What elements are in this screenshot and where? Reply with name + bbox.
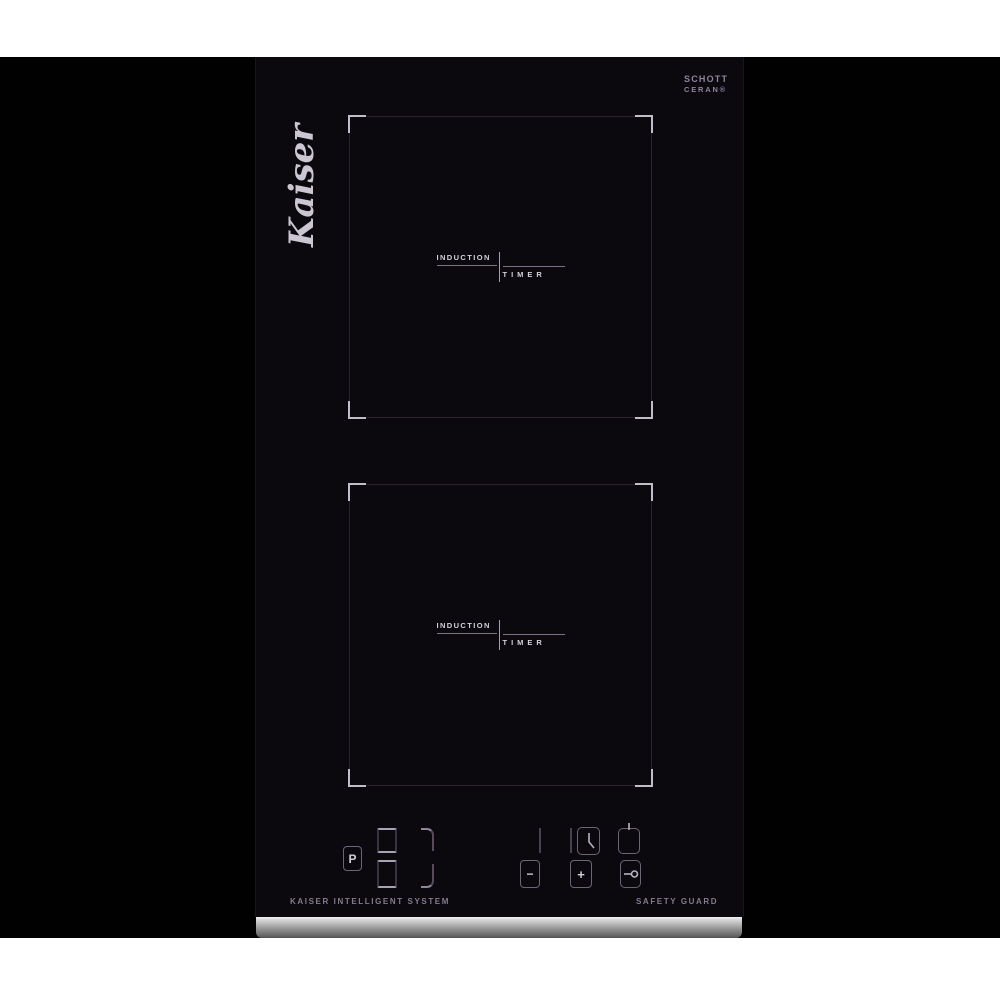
steel-trim <box>256 917 742 938</box>
ceran-text: CERAN® <box>684 85 744 94</box>
power-level-display-top <box>377 828 397 853</box>
induction-label: INDUCTION <box>437 253 497 266</box>
label-divider <box>499 252 500 282</box>
cooking-zone-top: INDUCTION TIMER <box>349 116 652 418</box>
timer-label: TIMER <box>503 634 565 648</box>
safety-guard-text: SAFETY GUARD <box>636 897 718 906</box>
induction-label: INDUCTION <box>437 621 497 634</box>
schott-ceran-logo: SCHOTT CERAN® <box>684 74 744 94</box>
panel-divider <box>539 828 541 853</box>
zone-corner-mark <box>635 483 653 501</box>
child-lock-button[interactable] <box>620 860 641 888</box>
timer-button[interactable] <box>577 827 600 855</box>
plus-button[interactable]: + <box>570 860 592 888</box>
key-icon <box>622 862 640 886</box>
panel-divider <box>570 828 572 853</box>
zone-corner-mark <box>635 769 653 787</box>
kaiser-brand-logo: Kaiser <box>263 95 335 255</box>
clock-icon <box>579 829 599 853</box>
kaiser-logo-text: Kaiser <box>282 122 322 248</box>
timer-label: TIMER <box>503 266 565 280</box>
zone-corner-mark <box>635 401 653 419</box>
booster-button[interactable]: P <box>343 846 362 871</box>
zone-corner-mark <box>348 401 366 419</box>
label-divider <box>499 620 500 650</box>
power-level-display-bottom <box>377 860 397 888</box>
zone-corner-mark <box>348 769 366 787</box>
plus-label: + <box>577 867 585 882</box>
power-button[interactable] <box>618 828 640 854</box>
power-icon <box>628 823 630 830</box>
intelligent-system-text: KAISER INTELLIGENT SYSTEM <box>290 897 450 906</box>
zone-corner-mark <box>635 115 653 133</box>
booster-label: P <box>348 852 356 866</box>
cooking-zone-bottom: INDUCTION TIMER <box>349 484 652 786</box>
zone-corner-mark <box>348 483 366 501</box>
zone-select-bracket-top <box>421 828 434 851</box>
zone-label: INDUCTION TIMER <box>437 252 565 282</box>
zone-corner-mark <box>348 115 366 133</box>
schott-text: SCHOTT <box>684 74 744 84</box>
minus-button[interactable]: − <box>520 860 540 888</box>
zone-label: INDUCTION TIMER <box>437 620 565 650</box>
minus-label: − <box>526 867 533 881</box>
product-photo: Kaiser SCHOTT CERAN® INDUCTION TIMER IND… <box>0 0 1000 1000</box>
zone-select-bracket-bottom <box>421 864 434 888</box>
